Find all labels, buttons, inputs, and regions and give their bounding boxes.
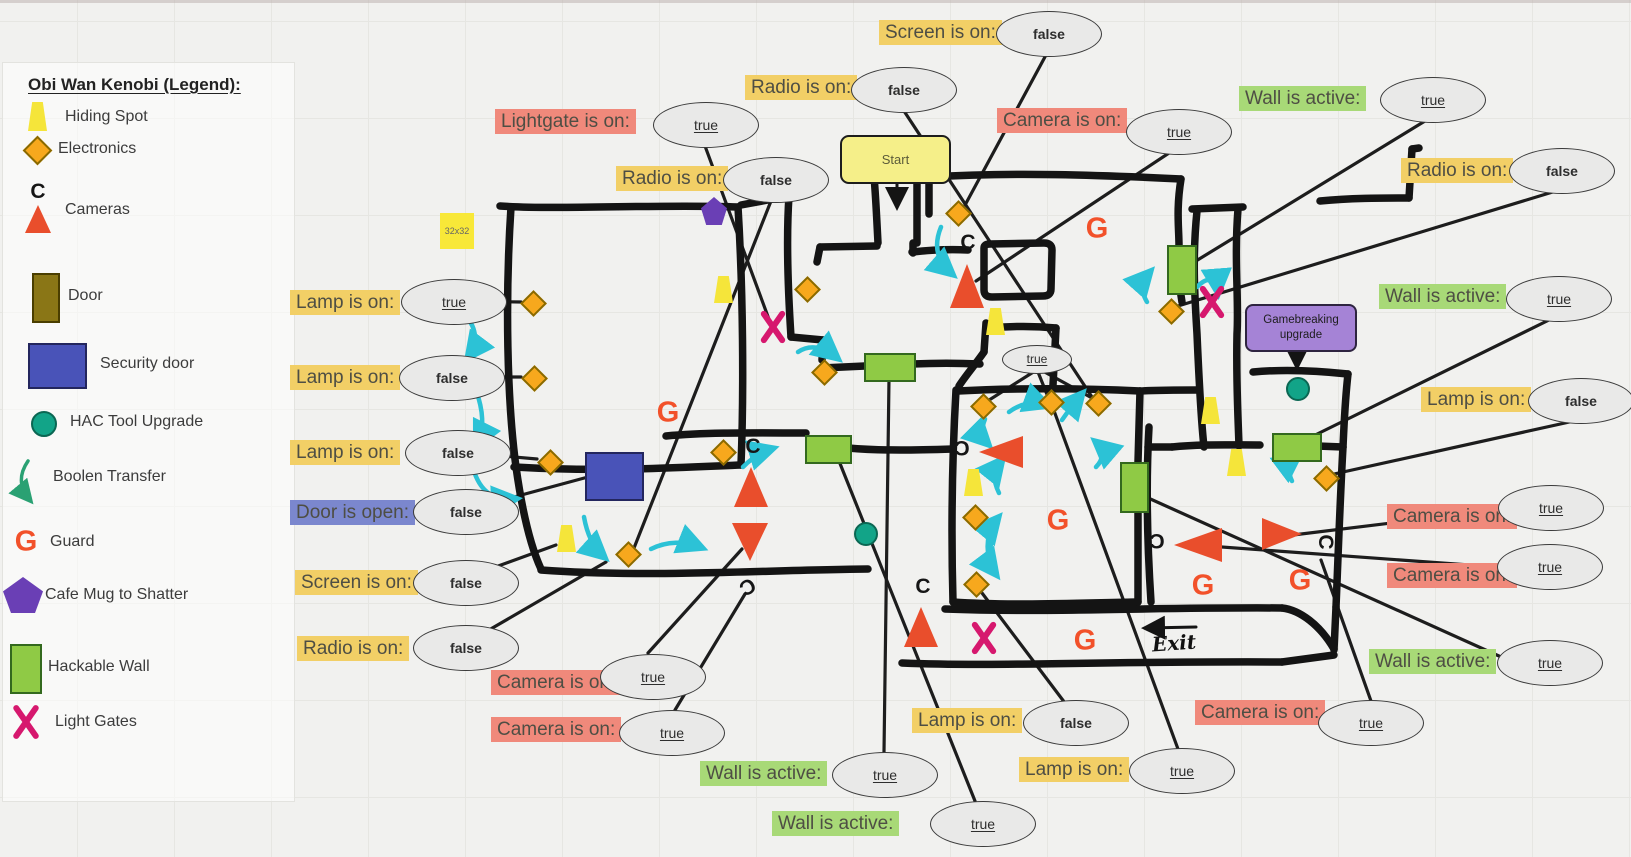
camera-r1-value[interactable]: true [1539, 500, 1563, 516]
security-door-icon[interactable] [585, 452, 644, 501]
wall-bc1-value-node[interactable]: true [832, 752, 938, 798]
screen-left-label[interactable]: Screen is on: [295, 570, 418, 595]
door-open-label[interactable]: Door is open: [290, 500, 415, 525]
guard-marker[interactable]: G [1289, 565, 1312, 598]
radio-left-label[interactable]: Radio is on: [297, 636, 409, 661]
lightgate-top-value-node[interactable]: true [653, 102, 759, 148]
hackable-wall-icon[interactable] [1120, 462, 1149, 513]
wall-r-value[interactable]: true [1538, 655, 1562, 671]
lamp-1-label[interactable]: Lamp is on: [290, 290, 400, 315]
size-note-label: 32x32 [445, 226, 470, 236]
lamp-2-label[interactable]: Lamp is on: [290, 365, 400, 390]
camera-r2-value-node[interactable]: true [1497, 544, 1603, 590]
radio-right-value-node[interactable]: false [1509, 148, 1615, 194]
lamp-3-label[interactable]: Lamp is on: [290, 440, 400, 465]
gamebreaking-upgrade-node[interactable]: Gamebreakingupgrade [1245, 304, 1357, 352]
camera-bl1-value-node[interactable]: true [600, 654, 706, 700]
door-open-value[interactable]: false [450, 504, 482, 520]
lightgate-top-label[interactable]: Lightgate is on: [495, 109, 636, 134]
radio-top-value[interactable]: false [888, 82, 920, 98]
light-gate-icon[interactable] [1195, 283, 1229, 321]
lamp-bc1-value[interactable]: false [1060, 715, 1092, 731]
lamp-bc2-label[interactable]: Lamp is on: [1019, 757, 1129, 782]
lightgate-top-value[interactable]: true [694, 117, 718, 133]
screen-left-value-node[interactable]: false [413, 560, 519, 606]
wall-bc2-value-node[interactable]: true [930, 801, 1036, 847]
lamp-3-value[interactable]: false [442, 445, 474, 461]
guard-marker[interactable]: G [1047, 505, 1070, 538]
radio-top-label[interactable]: Radio is on: [745, 75, 857, 100]
wall-bc2-label[interactable]: Wall is active: [772, 811, 899, 836]
camera-c-marker[interactable]: C [954, 435, 969, 459]
wall-right-label[interactable]: Wall is active: [1379, 284, 1506, 309]
wall-right-value-node[interactable]: true [1506, 276, 1612, 322]
lamp-2-value-node[interactable]: false [399, 355, 505, 401]
light-gate-icon[interactable] [756, 308, 790, 346]
camera-top-value[interactable]: true [1167, 124, 1191, 140]
hac-tool-icon[interactable] [1286, 377, 1310, 401]
light-gate-icon[interactable] [967, 619, 1001, 657]
lamp-1-value[interactable]: true [442, 294, 466, 310]
lamp-2-value[interactable]: false [436, 370, 468, 386]
exit-direction-arrow [1147, 627, 1196, 628]
screen-left-value[interactable]: false [450, 575, 482, 591]
radio-mid-value-node[interactable]: false [723, 157, 829, 203]
wall-top-label[interactable]: Wall is active: [1239, 86, 1366, 111]
radio-top-value-node[interactable]: false [851, 67, 957, 113]
whiteboard-canvas[interactable]: Obi Wan Kenobi (Legend): Hiding SpotElec… [0, 0, 1631, 857]
radio-mid-value[interactable]: false [760, 172, 792, 188]
radio-mid-label[interactable]: Radio is on: [616, 166, 728, 191]
inner-gate-value[interactable]: true [1027, 352, 1048, 366]
guard-marker[interactable]: G [657, 397, 680, 430]
guard-marker[interactable]: G [1086, 213, 1109, 246]
camera-bc-value-node[interactable]: true [1318, 700, 1424, 746]
wall-bc2-value[interactable]: true [971, 816, 995, 832]
camera-bc-label[interactable]: Camera is on: [1195, 700, 1325, 725]
camera-bl2-value-node[interactable]: true [619, 710, 725, 756]
lamp-bc2-value[interactable]: true [1170, 763, 1194, 779]
camera-bl2-value[interactable]: true [660, 725, 684, 741]
wall-top-value[interactable]: true [1421, 92, 1445, 108]
hackable-wall-icon[interactable] [1167, 245, 1197, 295]
exit-label: Exit [1151, 629, 1197, 656]
hackable-wall-icon[interactable] [805, 435, 852, 464]
hackable-wall-icon[interactable] [864, 353, 916, 382]
start-node[interactable]: Start [840, 135, 951, 184]
lamp-1-value-node[interactable]: true [401, 279, 507, 325]
hackable-wall-icon[interactable] [1272, 433, 1322, 462]
start-label: Start [882, 152, 909, 167]
hac-tool-icon[interactable] [854, 522, 878, 546]
camera-top-value-node[interactable]: true [1126, 109, 1232, 155]
lamp-right-label[interactable]: Lamp is on: [1421, 387, 1531, 412]
guard-marker[interactable]: G [1192, 570, 1215, 603]
wall-bc1-value[interactable]: true [873, 767, 897, 783]
camera-c-marker[interactable]: C [1149, 528, 1164, 552]
wall-r-label[interactable]: Wall is active: [1369, 649, 1496, 674]
radio-left-value-node[interactable]: false [413, 625, 519, 671]
wall-right-value[interactable]: true [1547, 291, 1571, 307]
radio-left-value[interactable]: false [450, 640, 482, 656]
inner-gate-value-node[interactable]: true [1002, 345, 1072, 374]
wall-top-value-node[interactable]: true [1380, 77, 1486, 123]
camera-r1-value-node[interactable]: true [1498, 485, 1604, 531]
screen-top-value-node[interactable]: false [996, 11, 1102, 57]
camera-bl1-value[interactable]: true [641, 669, 665, 685]
screen-top-label[interactable]: Screen is on: [879, 20, 1002, 45]
camera-c-marker[interactable]: C [1313, 534, 1337, 549]
size-note[interactable]: 32x32 [440, 213, 474, 249]
upgrade-label: Gamebreakingupgrade [1263, 313, 1338, 343]
camera-c-marker[interactable]: C [915, 575, 930, 599]
wall-bc1-label[interactable]: Wall is active: [700, 761, 827, 786]
camera-bl2-label[interactable]: Camera is on: [491, 717, 621, 742]
lamp-bc1-label[interactable]: Lamp is on: [912, 708, 1022, 733]
radio-right-label[interactable]: Radio is on: [1401, 158, 1513, 183]
lamp-bc1-value-node[interactable]: false [1023, 700, 1129, 746]
lamp-3-value-node[interactable]: false [405, 430, 511, 476]
camera-c-marker[interactable]: C [745, 435, 760, 459]
camera-top-label[interactable]: Camera is on: [997, 108, 1127, 133]
screen-top-value[interactable]: false [1033, 26, 1065, 42]
camera-c-marker[interactable]: C [960, 231, 975, 255]
radio-right-value[interactable]: false [1546, 163, 1578, 179]
guard-marker[interactable]: G [1074, 625, 1097, 658]
lamp-right-value[interactable]: false [1565, 393, 1597, 409]
door-open-value-node[interactable]: false [413, 489, 519, 535]
wall-r-value-node[interactable]: true [1497, 640, 1603, 686]
lamp-right-value-node[interactable]: false [1528, 378, 1631, 424]
legend-boolean-arrow-icon [21, 461, 29, 499]
camera-bc-value[interactable]: true [1359, 715, 1383, 731]
camera-r2-value[interactable]: true [1538, 559, 1562, 575]
lamp-bc2-value-node[interactable]: true [1129, 748, 1235, 794]
